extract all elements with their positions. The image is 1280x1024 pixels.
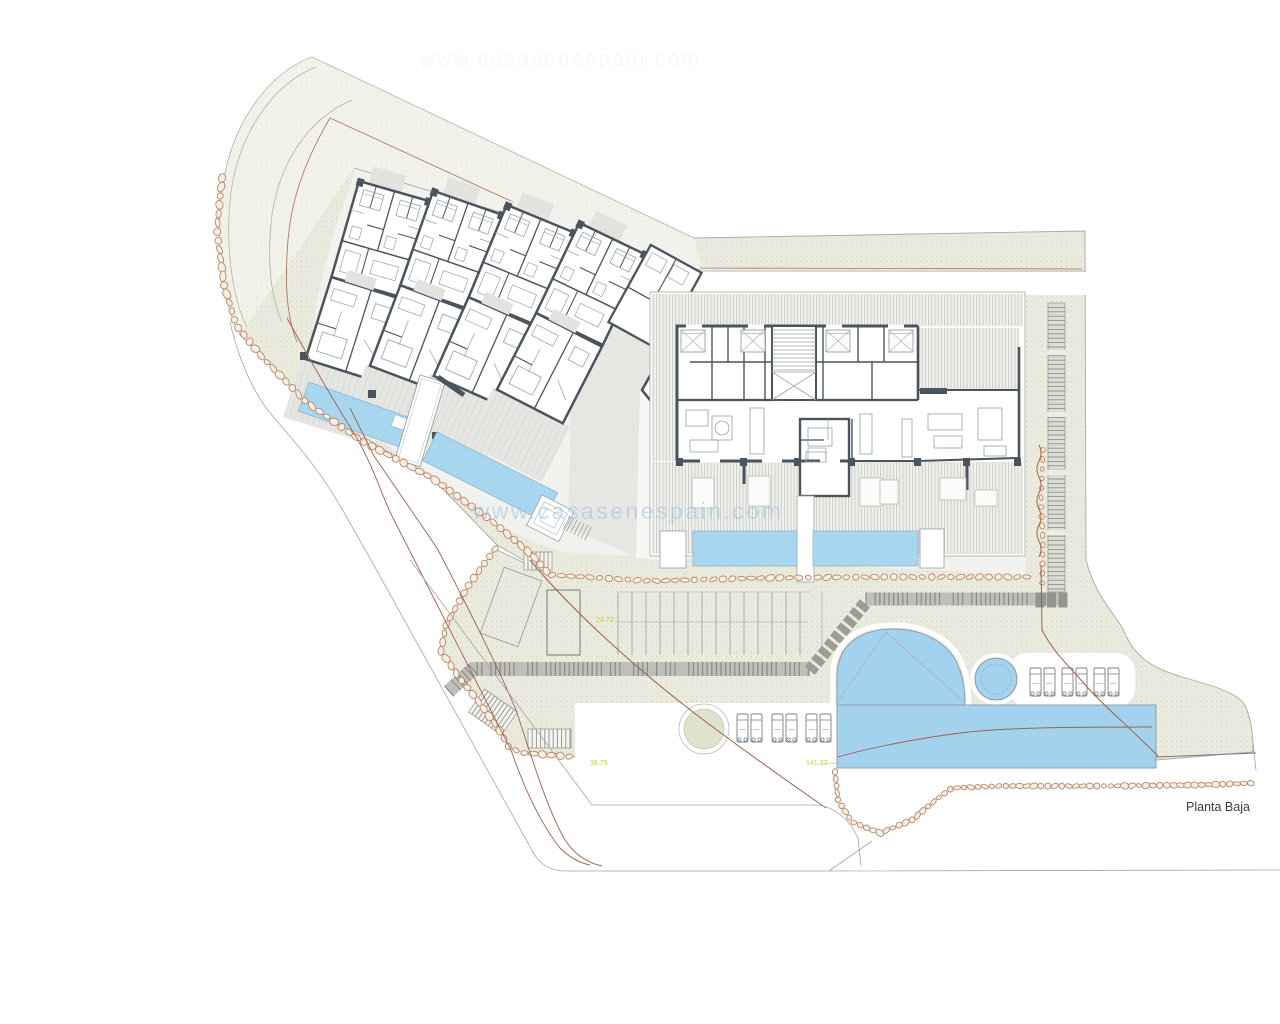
svg-text:24.72: 24.72 (596, 617, 614, 624)
svg-text:38.79: 38.79 (590, 760, 608, 767)
svg-text:141.33: 141.33 (806, 760, 828, 767)
svg-text:www.casasenespain.com: www.casasenespain.com (418, 48, 701, 71)
svg-text:Planta Baja: Planta Baja (1186, 800, 1250, 814)
svg-text:www.casasenespain.com: www.casasenespain.com (472, 498, 784, 524)
